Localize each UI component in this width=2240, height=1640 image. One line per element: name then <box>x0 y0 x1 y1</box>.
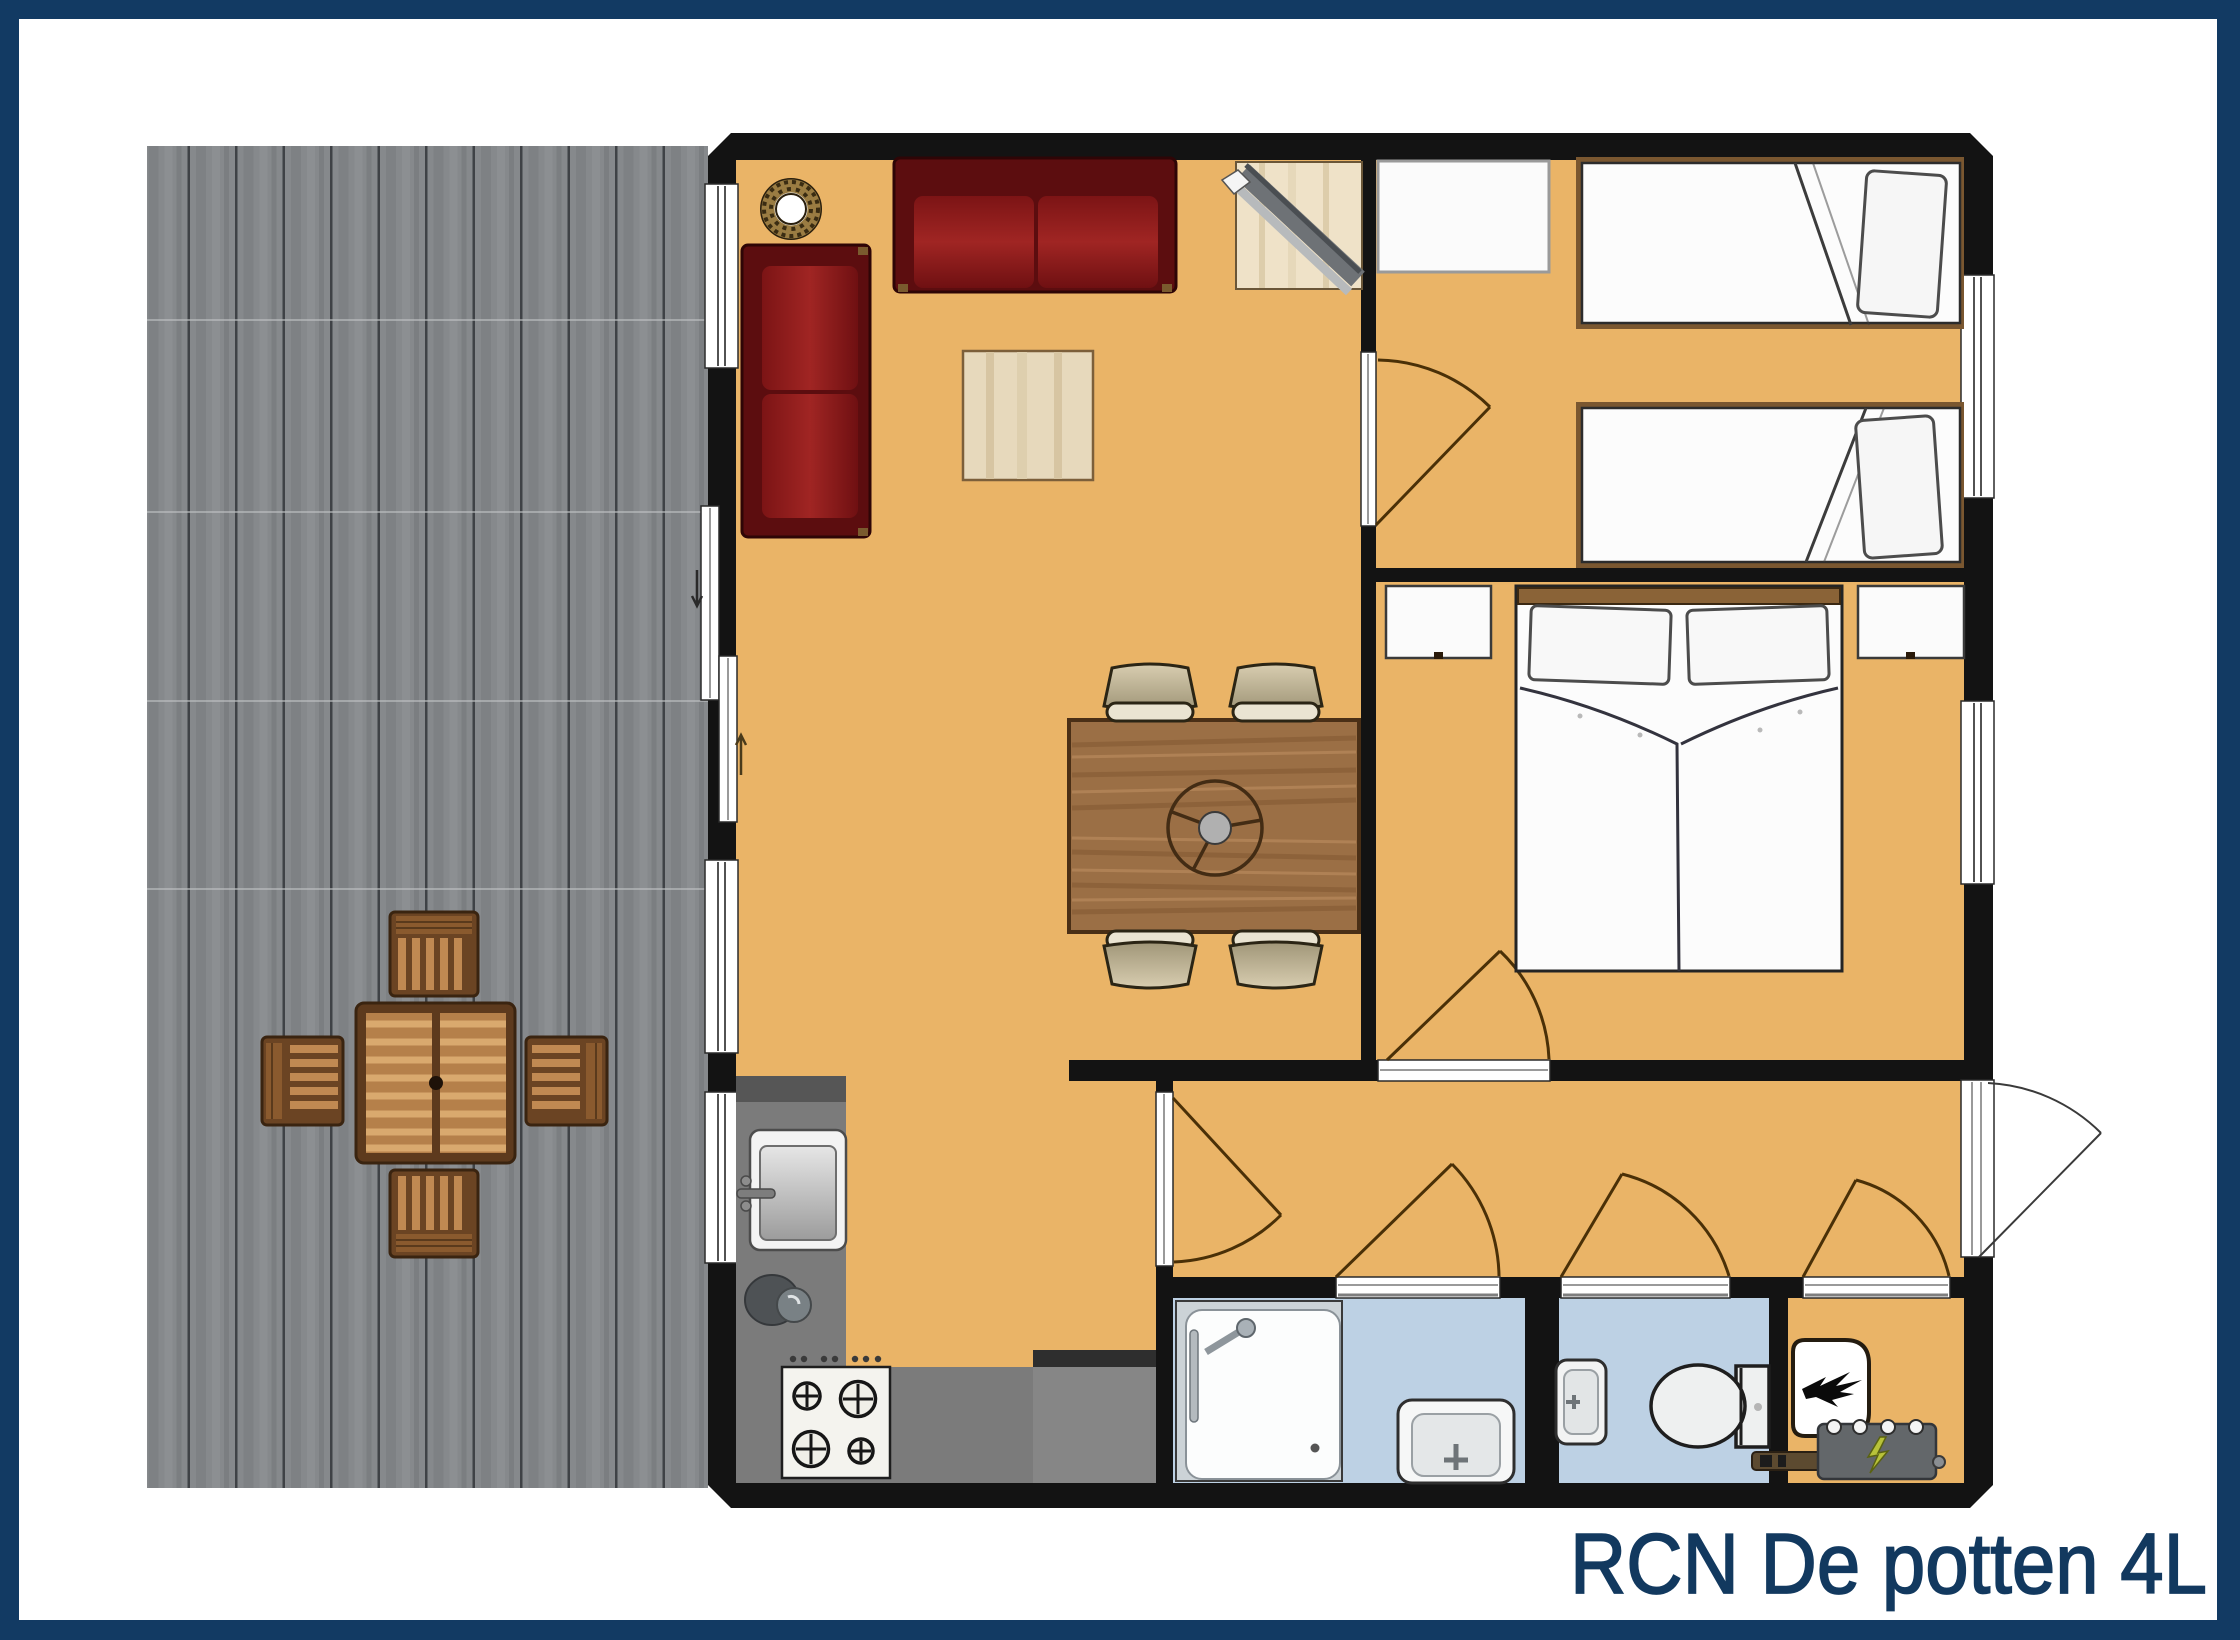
svg-text:RCN De potten 4L: RCN De potten 4L <box>1570 1517 2207 1612</box>
